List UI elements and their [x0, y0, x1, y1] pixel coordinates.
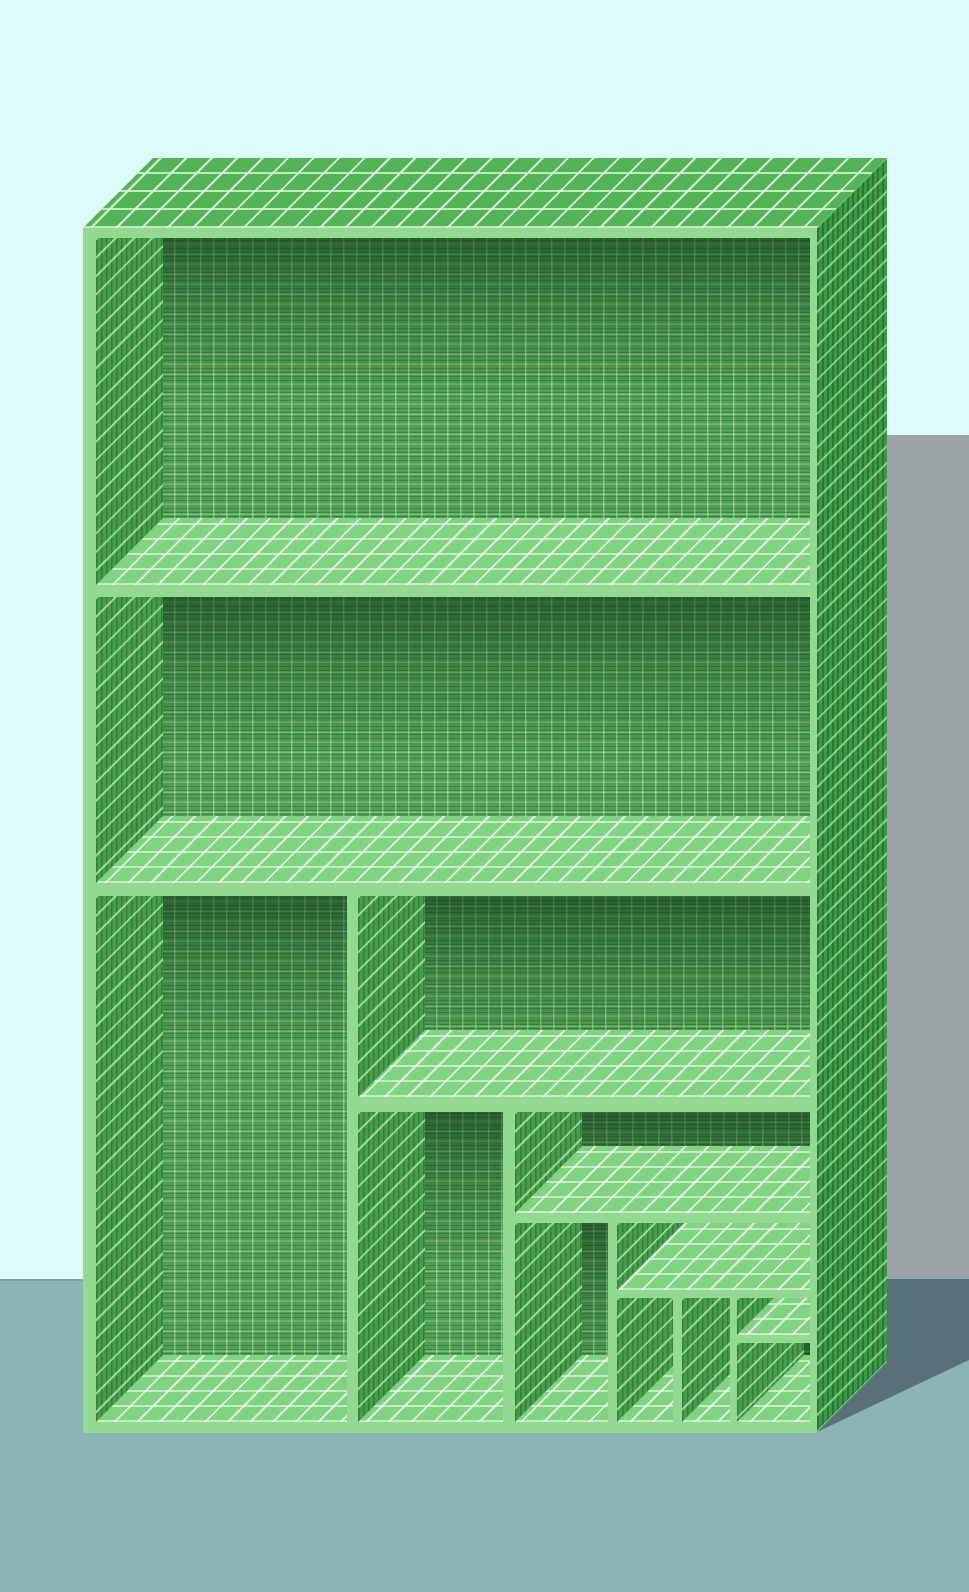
compartment-top-shelf — [96, 238, 810, 585]
shelf-side-face — [817, 158, 887, 1432]
compartment-bottom-left-tall — [96, 896, 347, 1422]
scene — [0, 0, 969, 1590]
compartment-nested-column-3 — [682, 1298, 730, 1422]
compartment-middle-shelf — [96, 597, 810, 883]
wall-shadow — [887, 435, 969, 1279]
shelf-front-face — [83, 228, 817, 1433]
compartment-middle-column — [358, 1112, 503, 1422]
shelf-top-face — [83, 158, 887, 228]
compartment-nested-small-bottom — [737, 1343, 810, 1422]
compartment-nested-shallow — [617, 1223, 810, 1290]
compartment-bottom-wide — [358, 896, 810, 1097]
compartment-nested-small-top — [737, 1298, 810, 1335]
compartment-nested-wide — [515, 1112, 810, 1213]
compartment-nested-column-2 — [617, 1298, 673, 1422]
compartment-nested-column-1 — [515, 1223, 608, 1422]
